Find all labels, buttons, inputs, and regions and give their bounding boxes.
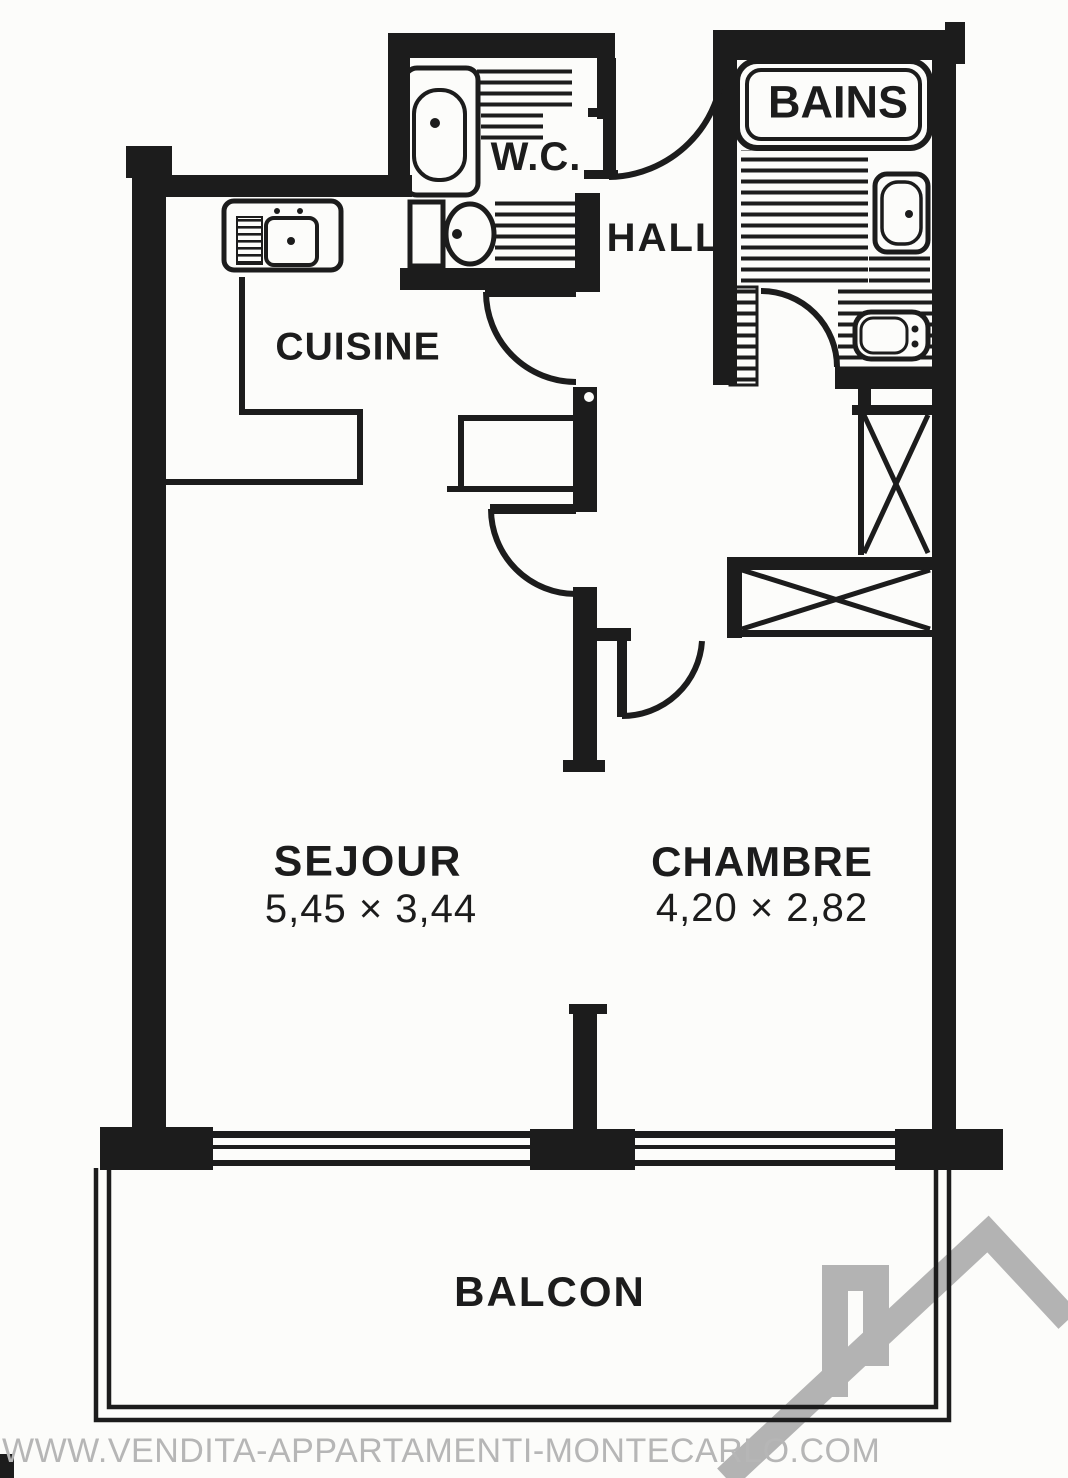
chambre-door-stub xyxy=(597,628,631,641)
bottom-pier-right xyxy=(895,1129,1003,1170)
closet-v-x xyxy=(864,415,928,553)
wc-right-wall-lower xyxy=(575,193,600,292)
sejour-door xyxy=(490,504,576,594)
room-label-sejour: SEJOUR xyxy=(274,841,463,884)
bottom-pier-center xyxy=(530,1129,635,1170)
chambre-door xyxy=(617,641,702,717)
toilet-icon xyxy=(410,202,494,266)
room-label-hall: HALL xyxy=(607,218,722,258)
wc-bottom-wall xyxy=(400,268,578,290)
wc-top-wall xyxy=(388,33,615,58)
bottom-pier-left xyxy=(100,1127,213,1170)
bains-bottom-wall xyxy=(835,367,955,389)
bains-door xyxy=(761,291,837,367)
room-label-bains: BAINS xyxy=(768,80,908,125)
closet-h-x xyxy=(742,570,930,629)
right-exterior-wall xyxy=(932,32,956,1132)
sejour-chambre-wall-upper xyxy=(573,587,597,772)
room-label-chambre: CHAMBRE xyxy=(651,841,873,883)
room-dimensions-sejour: 5,45 × 3,44 xyxy=(265,889,477,929)
bains-top-wall xyxy=(713,30,963,60)
entry-door xyxy=(584,58,723,179)
kitchen-counter xyxy=(163,277,575,489)
wc-sink-icon xyxy=(405,68,478,195)
floor-plan-drawing xyxy=(0,0,1068,1478)
logo-chimney xyxy=(835,1278,876,1397)
hall-kitchen-wall-stub xyxy=(573,387,597,512)
room-label-balcon: BALCON xyxy=(454,1271,646,1313)
kitchen-cupboard xyxy=(447,418,575,489)
washbasin-icon xyxy=(875,174,928,252)
bidet-icon xyxy=(855,312,928,359)
hall-bottom-wall xyxy=(727,557,932,570)
stub-cap xyxy=(569,1004,607,1014)
room-label-cuisine: CUISINE xyxy=(275,328,440,367)
bains-hatch-under-basin xyxy=(869,255,930,285)
closet-h-bottom-line xyxy=(732,630,932,637)
left-exterior-wall xyxy=(132,150,166,1130)
wc-hatch-top xyxy=(477,63,572,112)
wall-foot xyxy=(563,760,605,772)
wc-left-wall xyxy=(388,35,410,197)
closet-h-left-wall xyxy=(727,557,742,638)
kitchen-door xyxy=(485,287,576,382)
floor-plan-page: W.C. HALL BAINS CUISINE SEJOUR 5,45 × 3,… xyxy=(0,0,1068,1478)
room-label-wc: W.C. xyxy=(491,137,582,177)
counter-outline xyxy=(163,277,360,482)
watermark-text: WWW.VENDITA-APPARTAMENTI-MONTECARLO.COM xyxy=(2,1432,880,1471)
bains-door-partition xyxy=(730,287,757,385)
room-dimensions-chambre: 4,20 × 2,82 xyxy=(656,888,868,928)
kitchen-sink-icon xyxy=(224,201,341,270)
sejour-chambre-wall-lower xyxy=(573,1008,597,1130)
closets xyxy=(742,413,930,629)
bains-hatch-floor xyxy=(741,150,868,284)
kitchen-top-wall xyxy=(132,175,412,197)
wc-hatch-bottom xyxy=(495,196,575,266)
door-hinge-dot xyxy=(584,392,594,402)
